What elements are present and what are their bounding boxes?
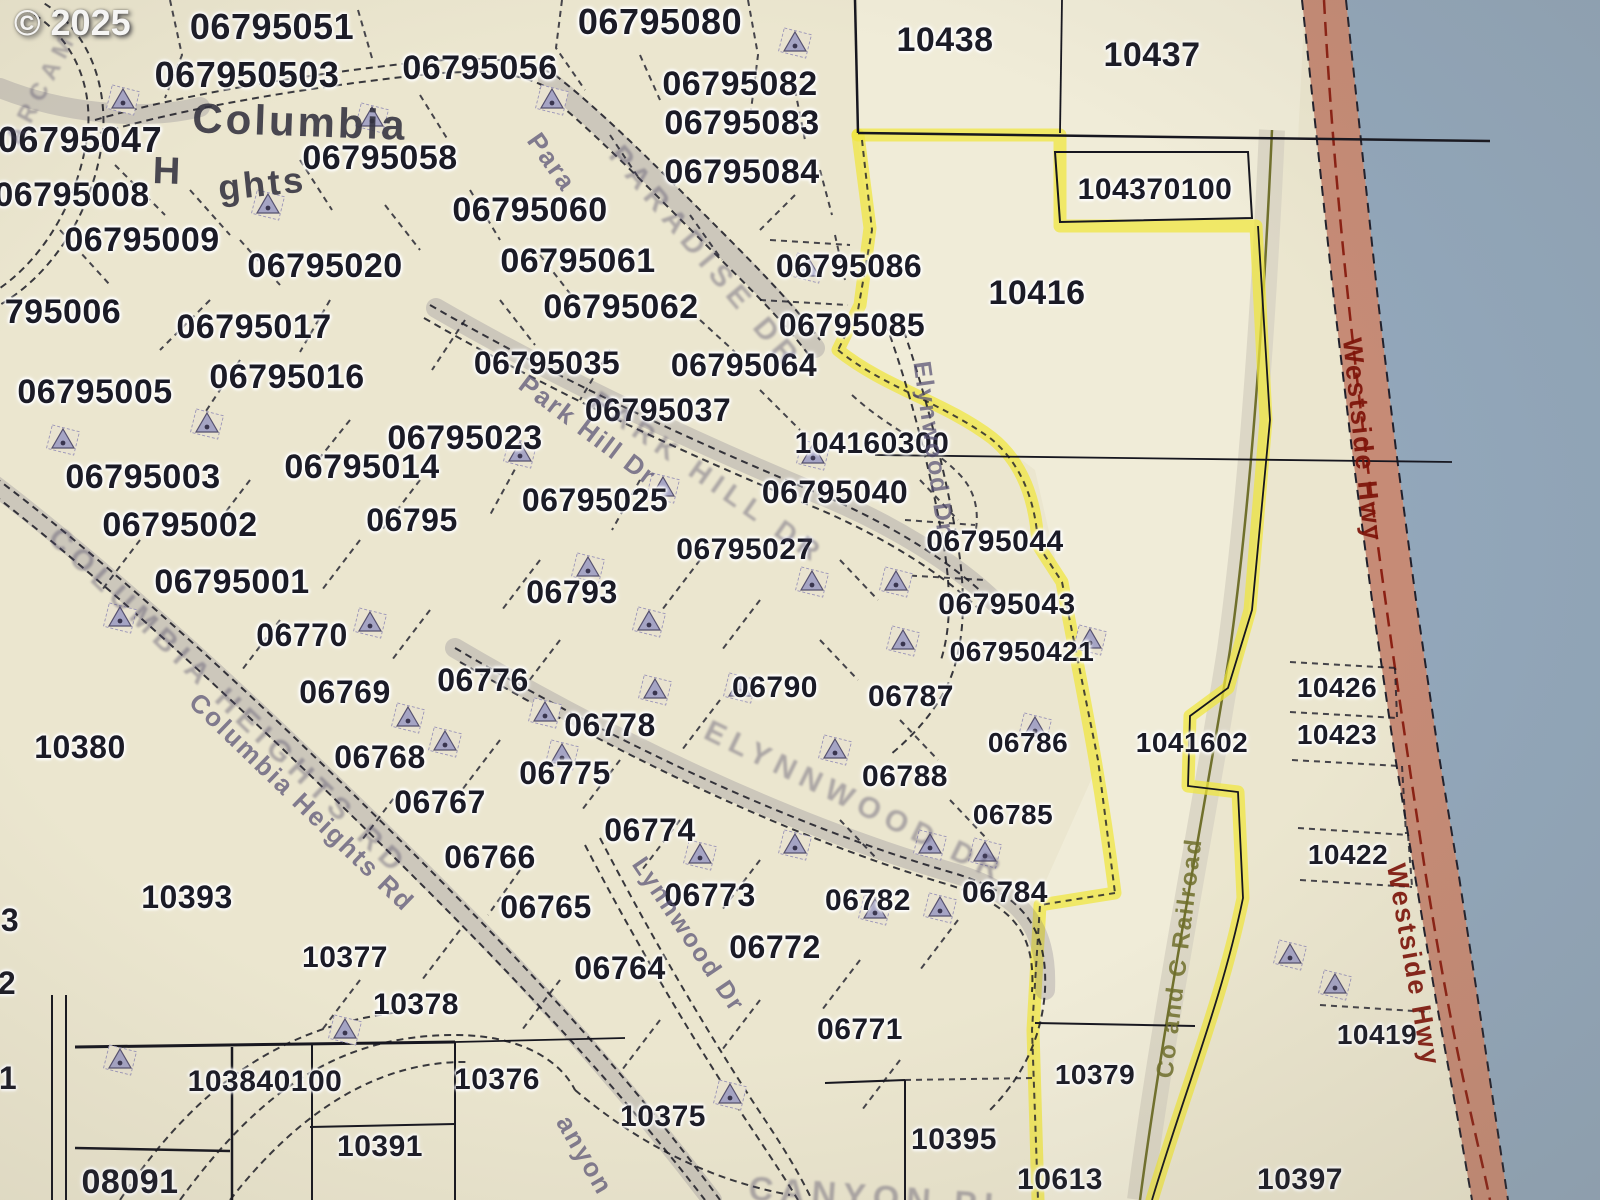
parcel-label: 06787 [868,682,954,712]
parcel-label: 06793 [526,576,617,608]
parcel-label: 06795082 [662,67,817,101]
road-label: CANYON PL [748,1172,1013,1200]
parcel-label: 2 [0,967,16,999]
parcel-map[interactable]: 0679505106795050306795056067950800679508… [0,0,1600,1200]
parcel-label: 06774 [604,814,695,846]
parcel-label: 06767 [394,786,485,818]
parcel-label: 06770 [256,619,347,651]
parcel-label: 06795 [366,504,457,536]
parcel-label: 06786 [988,729,1068,757]
parcel-label: 06795035 [474,347,620,379]
parcel-label: 10393 [141,881,232,913]
parcel-label: 06795020 [247,249,402,283]
road-label: Westside Hwy [1338,337,1386,544]
road-label: ELYNNWOOD DR [700,716,1011,888]
parcel-label: 06795016 [209,360,364,394]
parcel-label: 10397 [1257,1165,1343,1195]
parcel-label: 10379 [1055,1061,1135,1089]
parcel-label: 10377 [302,943,388,973]
parcel-label: 06768 [334,741,425,773]
parcel-label: 795006 [5,295,121,329]
parcel-label: 10380 [34,731,125,763]
parcel-label: 06778 [564,709,655,741]
place-label: H [152,150,184,194]
parcel-label: 08091 [81,1165,178,1199]
parcel-label: 06795080 [578,4,742,40]
parcel-label: 06795083 [664,106,819,140]
parcel-label: 06790 [732,673,818,703]
parcel-label: 06795001 [154,565,309,599]
parcel-label: 10395 [911,1125,997,1155]
parcel-label: 06771 [817,1015,903,1045]
parcel-label: 06795060 [452,193,607,227]
parcel-label: 067950503 [155,57,340,93]
parcel-label: 10376 [454,1065,540,1095]
parcel-label: 06795014 [284,450,439,484]
parcel-label: 10438 [896,23,993,57]
parcel-label: 06784 [962,878,1048,908]
parcel-label: 06795017 [176,310,331,344]
parcel-label: 06795005 [17,375,172,409]
parcel-label: 06788 [862,762,948,792]
parcel-label: 1041602 [1136,729,1249,757]
parcel-label: 06769 [299,676,390,708]
parcel-label: 1 [0,1062,17,1094]
parcel-label: 06795008 [0,178,150,212]
parcel-label: 10422 [1308,841,1388,869]
parcel-label: 06795086 [776,250,922,282]
parcel-label: 06795043 [938,590,1075,620]
parcel-label: 067950421 [950,638,1095,666]
parcel-label: 3 [1,904,19,936]
parcel-label: 104370100 [1078,175,1233,205]
parcel-label: 10426 [1297,674,1377,702]
label-layer: 0679505106795050306795056067950800679508… [0,0,1600,1200]
parcel-label: 06795051 [190,9,354,45]
parcel-label: 06785 [973,801,1053,829]
parcel-label: 06795002 [102,508,257,542]
place-label: ghts [216,159,308,210]
parcel-label: 06772 [729,931,820,963]
parcel-label: 10437 [1103,38,1200,72]
parcel-label: 06795085 [779,309,925,341]
parcel-label: 06795084 [664,155,819,189]
parcel-label: 06795061 [500,244,655,278]
copyright-watermark: © 2025 [14,2,131,44]
parcel-label: 06765 [500,891,591,923]
road-label: Para [523,128,581,196]
parcel-label: 06795003 [65,460,220,494]
road-label: anyon [552,1111,618,1199]
parcel-label: 06782 [825,886,911,916]
parcel-label: 10419 [1337,1021,1417,1049]
parcel-label: 06776 [437,664,528,696]
parcel-label: 06764 [574,952,665,984]
parcel-label: 10416 [988,276,1085,310]
parcel-label: 06766 [444,841,535,873]
parcel-label: 06775 [519,757,610,789]
parcel-label: 10391 [337,1132,423,1162]
parcel-label: 06795040 [762,476,908,508]
parcel-label: 06795062 [543,290,698,324]
parcel-label: 10423 [1297,721,1377,749]
parcel-label: 10378 [373,990,459,1020]
parcel-label: 06795056 [402,51,557,85]
parcel-label: 06795009 [64,223,219,257]
place-label: Columbia [192,94,409,149]
parcel-label: 10375 [620,1102,706,1132]
parcel-label: 103840100 [188,1067,343,1097]
road-label: Co and C Railroad [1153,836,1206,1079]
parcel-label: 10613 [1017,1165,1103,1195]
